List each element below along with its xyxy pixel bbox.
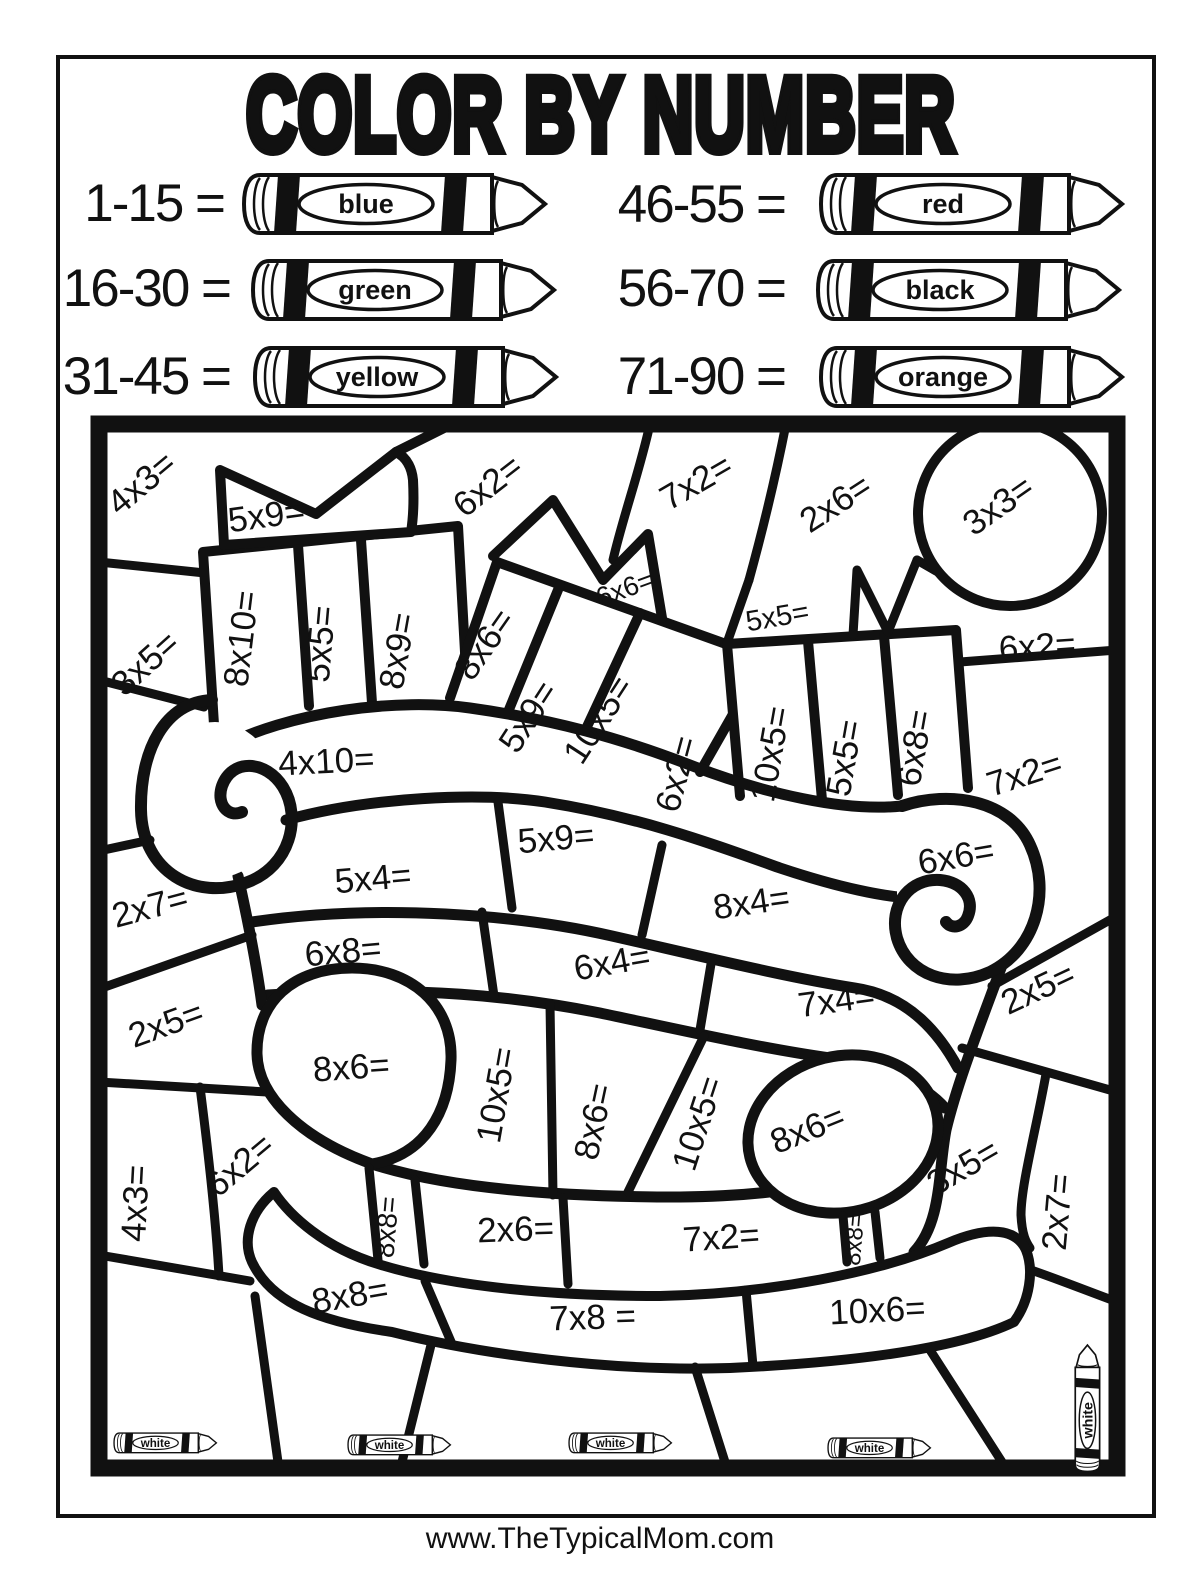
svg-text:green: green <box>338 275 412 305</box>
svg-text:COLOR BY NUMBER: COLOR BY NUMBER <box>246 55 956 173</box>
svg-text:8x8=: 8x8= <box>839 1212 870 1267</box>
svg-text:white: white <box>140 1438 171 1450</box>
svg-text:16-30 =: 16-30 = <box>63 259 230 318</box>
svg-text:blue: blue <box>338 189 394 219</box>
svg-text:white: white <box>1080 1402 1096 1440</box>
svg-text:white: white <box>374 1440 405 1452</box>
svg-text:7x8 =: 7x8 = <box>549 1297 637 1339</box>
svg-text:red: red <box>922 189 964 219</box>
svg-text:31-45 =: 31-45 = <box>63 347 230 406</box>
svg-text:56-70 =: 56-70 = <box>618 259 785 318</box>
svg-text:6x8=: 6x8= <box>303 929 383 975</box>
svg-text:2x6=: 2x6= <box>477 1209 555 1251</box>
svg-text:46-55 =: 46-55 = <box>618 175 785 234</box>
svg-text:www.TheTypicalMom.com: www.TheTypicalMom.com <box>425 1522 774 1555</box>
svg-text:2x7=: 2x7= <box>1035 1172 1081 1252</box>
svg-text:black: black <box>905 275 975 305</box>
svg-text:white: white <box>595 1438 626 1450</box>
svg-text:7x2=: 7x2= <box>681 1215 760 1259</box>
svg-text:1-15 =: 1-15 = <box>84 174 224 233</box>
svg-text:5x4=: 5x4= <box>333 856 413 902</box>
svg-text:8x6=: 8x6= <box>311 1045 390 1089</box>
svg-text:6x2=: 6x2= <box>997 624 1076 668</box>
svg-text:10x6=: 10x6= <box>828 1289 926 1333</box>
svg-text:orange: orange <box>898 362 988 392</box>
svg-text:5x5=: 5x5= <box>298 604 344 684</box>
svg-text:5x9=: 5x9= <box>516 816 596 862</box>
svg-text:71-90 =: 71-90 = <box>618 347 785 406</box>
svg-text:4x3=: 4x3= <box>114 1164 157 1243</box>
svg-text:yellow: yellow <box>336 362 420 392</box>
svg-text:8x8=: 8x8= <box>368 1195 404 1259</box>
svg-text:white: white <box>854 1443 885 1455</box>
svg-text:4x10=: 4x10= <box>277 740 375 784</box>
